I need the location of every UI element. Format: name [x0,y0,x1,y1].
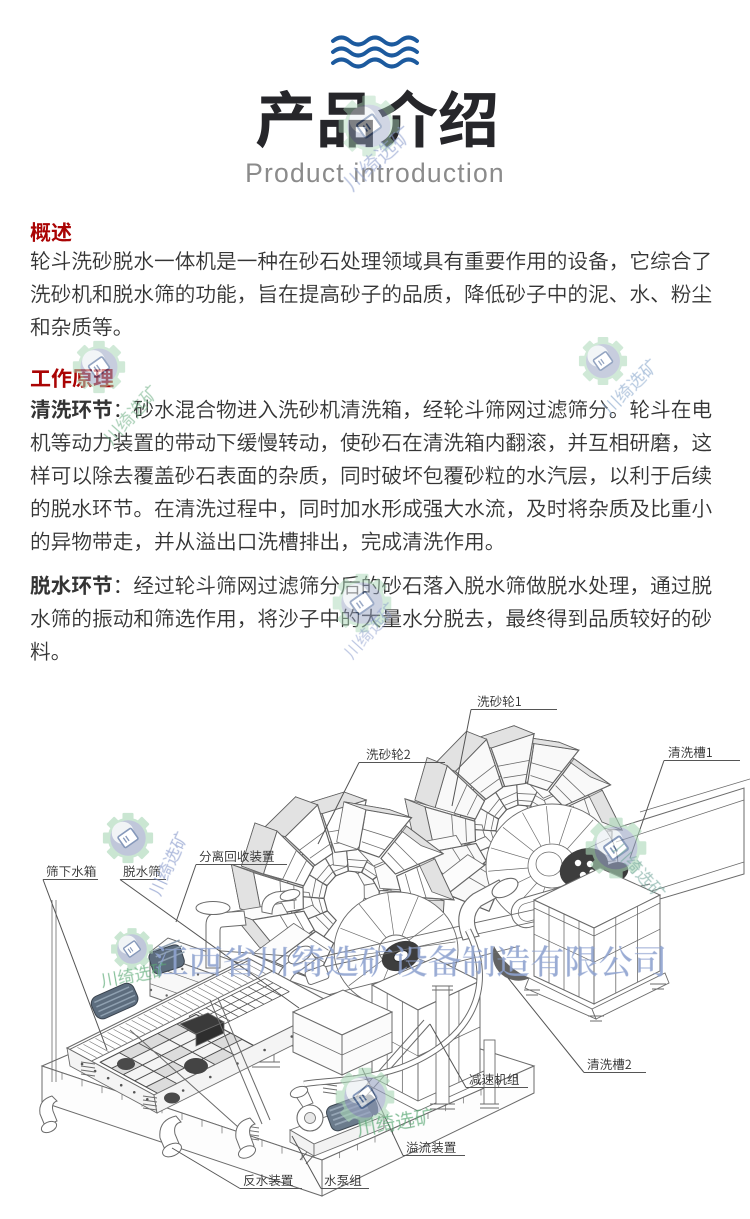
svg-text:Product introduction: Product introduction [245,158,505,188]
